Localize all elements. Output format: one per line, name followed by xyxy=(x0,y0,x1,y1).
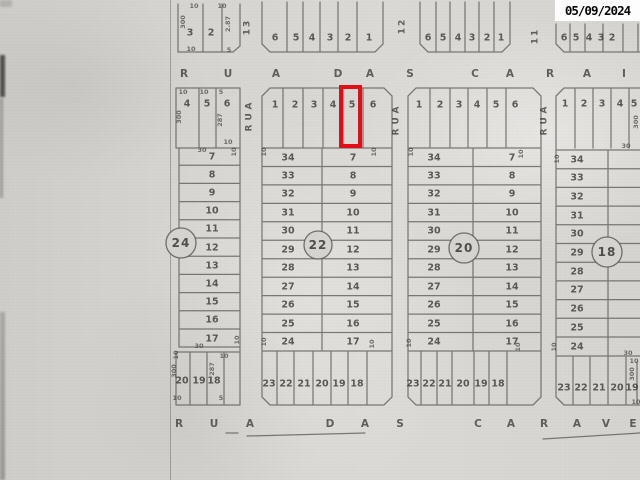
street-letter: E xyxy=(629,419,636,430)
row-lot-number: 15 xyxy=(205,297,218,307)
street-letter: D xyxy=(326,419,335,430)
row-lot-number: 15 xyxy=(505,300,518,310)
lot-number: 2 xyxy=(581,99,588,109)
dim-label: 10 xyxy=(173,350,180,359)
row-lot-number: 29 xyxy=(427,245,440,255)
dim-label: 10 xyxy=(554,154,561,163)
row-lot-number: 9 xyxy=(209,188,216,198)
scanned-plat-map: RUADASCARAIRUADASCARAVE13RUA12RUA11RUA32… xyxy=(0,0,640,480)
lot-number: 4 xyxy=(330,100,337,110)
row-lot-number: 12 xyxy=(205,243,218,253)
row-lot-number: 13 xyxy=(205,261,218,271)
row-lot-number: 17 xyxy=(205,334,218,344)
lot-number: 1 xyxy=(366,33,373,43)
row-lot-number: 10 xyxy=(505,208,518,218)
lot-number: 4 xyxy=(617,99,624,109)
lot-number: 5 xyxy=(493,100,500,110)
row-lot-number: 8 xyxy=(350,171,357,181)
dim-label: 10 xyxy=(371,147,378,156)
dim-label: 5 xyxy=(219,395,224,402)
dim-label: 10 xyxy=(172,395,181,402)
street-letter: C xyxy=(471,69,479,80)
lot-number: 3 xyxy=(469,33,476,43)
block-number: 20 xyxy=(455,242,474,254)
street-letter: A xyxy=(272,69,280,80)
lot-number: 3 xyxy=(311,100,318,110)
dim-label: 10 xyxy=(369,339,376,348)
lot-number: 1 xyxy=(562,99,569,109)
lot-number: 23 xyxy=(557,383,570,393)
row-lot-number: 17 xyxy=(346,337,359,347)
lot-number: 5 xyxy=(573,33,580,43)
lot-number: 6 xyxy=(561,33,568,43)
dim-label: 30 xyxy=(194,343,203,350)
lot-number: 2 xyxy=(345,33,352,43)
lot-number: 22 xyxy=(422,379,435,389)
dim-label: 10 xyxy=(219,353,228,360)
lot-number: 3 xyxy=(598,33,605,43)
street-letter: A xyxy=(361,419,369,430)
lot-number: 23 xyxy=(406,379,419,389)
street-name-vertical: RUA xyxy=(246,99,255,132)
dim-label: 10 xyxy=(186,46,195,53)
lot-number: 4 xyxy=(184,99,191,109)
row-lot-number: 28 xyxy=(281,263,294,273)
street-name-vertical: RUA xyxy=(393,103,402,136)
street-letter: R xyxy=(180,69,188,80)
row-lot-number: 7 xyxy=(209,152,216,162)
lot-number: 21 xyxy=(438,379,451,389)
dim-label: 10 xyxy=(408,147,415,156)
row-lot-number: 26 xyxy=(427,300,440,310)
lot-number: 4 xyxy=(586,33,593,43)
row-lot-number: 29 xyxy=(281,245,294,255)
street-letter: A xyxy=(246,419,254,430)
dim-label: 10 xyxy=(631,399,640,406)
dim-label: 10 xyxy=(515,342,522,351)
dim-label: 10 xyxy=(217,3,226,10)
dim-label: 10 xyxy=(223,139,232,146)
row-lot-number: 8 xyxy=(209,170,216,180)
dim-label: 10 xyxy=(261,337,268,346)
row-lot-number: 32 xyxy=(570,192,583,202)
lot-number: 5 xyxy=(631,99,638,109)
row-lot-number: 16 xyxy=(205,316,218,326)
date-stamp-text: 05/09/2024 xyxy=(565,3,630,18)
lot-number: 20 xyxy=(610,383,623,393)
lot-number: 22 xyxy=(279,379,292,389)
lot-number: 6 xyxy=(370,100,377,110)
block-number: 18 xyxy=(598,246,617,258)
row-lot-number: 24 xyxy=(570,342,583,352)
row-lot-number: 28 xyxy=(427,263,440,273)
row-lot-number: 14 xyxy=(205,279,218,289)
dim-label: 300 xyxy=(171,364,178,378)
dim-label: 10 xyxy=(199,89,208,96)
row-lot-number: 13 xyxy=(346,263,359,273)
street-number: 13 xyxy=(244,19,253,36)
block-number: 22 xyxy=(309,239,328,251)
lot-number: 1 xyxy=(416,100,423,110)
street-letter: R xyxy=(540,419,548,430)
lot-number: 6 xyxy=(425,33,432,43)
street-letter: A xyxy=(507,419,515,430)
lot-number: 23 xyxy=(262,379,275,389)
dim-label: 10 xyxy=(178,89,187,96)
row-lot-number: 13 xyxy=(505,263,518,273)
lot-number: 4 xyxy=(309,33,316,43)
row-lot-number: 24 xyxy=(427,337,440,347)
dim-label: 10 xyxy=(518,149,525,158)
row-lot-number: 10 xyxy=(346,208,359,218)
street-letter: A xyxy=(583,69,591,80)
row-lot-number: 34 xyxy=(570,155,583,165)
street-letter: A xyxy=(366,69,374,80)
lot-number: 3 xyxy=(456,100,463,110)
dim-label: 10 xyxy=(234,335,241,344)
row-lot-number: 14 xyxy=(505,282,518,292)
row-lot-number: 27 xyxy=(427,282,440,292)
street-letter: A xyxy=(506,69,514,80)
row-lot-number: 11 xyxy=(505,227,518,237)
row-lot-number: 30 xyxy=(427,227,440,237)
row-lot-number: 31 xyxy=(570,211,583,221)
lot-number: 19 xyxy=(332,379,345,389)
dim-label: 2.87 xyxy=(225,16,232,32)
row-lot-number: 25 xyxy=(570,323,583,333)
street-letter: R xyxy=(175,419,183,430)
lot-number: 19 xyxy=(474,379,487,389)
lot-number: 22 xyxy=(574,383,587,393)
street-name-vertical: RUA xyxy=(541,103,550,136)
date-stamp: 05/09/2024 xyxy=(555,0,640,21)
row-lot-number: 25 xyxy=(281,319,294,329)
dim-label: 300 xyxy=(176,110,183,124)
dim-label: 287 xyxy=(217,113,224,127)
lot-number: 19 xyxy=(192,376,205,386)
street-letter: R xyxy=(546,69,554,80)
street-letter: C xyxy=(474,419,482,430)
street-letter: A xyxy=(573,419,581,430)
street-letter: S xyxy=(406,69,414,80)
lot-number: 18 xyxy=(491,379,504,389)
street-number: 12 xyxy=(399,18,408,35)
lot-number: 20 xyxy=(456,379,469,389)
street-letter: U xyxy=(224,69,233,80)
dim-label: 30 xyxy=(623,350,632,357)
row-lot-number: 33 xyxy=(281,171,294,181)
dim-label: 5 xyxy=(219,89,224,96)
row-lot-number: 26 xyxy=(281,300,294,310)
street-letter: S xyxy=(396,419,404,430)
row-lot-number: 12 xyxy=(346,245,359,255)
row-lot-number: 8 xyxy=(509,171,516,181)
dim-label: 10 xyxy=(629,358,638,365)
row-lot-number: 25 xyxy=(427,319,440,329)
row-lot-number: 34 xyxy=(281,153,294,163)
lot-number: 4 xyxy=(455,33,462,43)
row-lot-number: 30 xyxy=(570,230,583,240)
row-lot-number: 11 xyxy=(346,227,359,237)
dim-label: 287 xyxy=(209,362,216,376)
street-letter: U xyxy=(210,419,219,430)
row-lot-number: 32 xyxy=(427,190,440,200)
row-lot-number: 24 xyxy=(281,337,294,347)
lot-number: 21 xyxy=(297,379,310,389)
map-labels: RUADASCARAIRUADASCARAVE13RUA12RUA11RUA32… xyxy=(0,0,640,480)
lot-number: 2 xyxy=(292,100,299,110)
row-lot-number: 26 xyxy=(570,304,583,314)
row-lot-number: 31 xyxy=(427,208,440,218)
lot-number: 1 xyxy=(272,100,279,110)
lot-number: 20 xyxy=(315,379,328,389)
row-lot-number: 9 xyxy=(509,190,516,200)
lot-number: 1 xyxy=(498,33,505,43)
row-lot-number: 32 xyxy=(281,190,294,200)
lot-number: 3 xyxy=(187,28,194,38)
dim-label: 10 xyxy=(261,147,268,156)
lot-number: 6 xyxy=(272,33,279,43)
dim-label: 10 xyxy=(189,3,198,10)
row-lot-number: 34 xyxy=(427,153,440,163)
row-lot-number: 14 xyxy=(346,282,359,292)
lot-number: 3 xyxy=(327,33,334,43)
lot-number: 5 xyxy=(440,33,447,43)
lot-number: 4 xyxy=(474,100,481,110)
row-lot-number: 12 xyxy=(505,245,518,255)
lot-number: 6 xyxy=(512,100,519,110)
highlight-rect xyxy=(339,85,362,148)
dim-label: 10 xyxy=(551,342,558,351)
lot-number: 3 xyxy=(599,99,606,109)
street-number: 11 xyxy=(532,28,541,45)
lot-number: 19 xyxy=(625,383,638,393)
row-lot-number: 16 xyxy=(505,319,518,329)
row-lot-number: 28 xyxy=(570,267,583,277)
row-lot-number: 10 xyxy=(205,206,218,216)
dim-label: 300 xyxy=(180,15,187,29)
dim-label: 5 xyxy=(227,47,232,54)
street-letter: D xyxy=(334,69,343,80)
row-lot-number: 16 xyxy=(346,319,359,329)
lot-number: 21 xyxy=(592,383,605,393)
dim-label: 30 xyxy=(621,143,630,150)
dim-label: 300 xyxy=(629,367,636,381)
row-lot-number: 7 xyxy=(350,153,357,163)
street-letter: I xyxy=(622,69,626,80)
row-lot-number: 27 xyxy=(281,282,294,292)
row-lot-number: 30 xyxy=(281,227,294,237)
lot-number: 18 xyxy=(207,376,220,386)
row-lot-number: 33 xyxy=(570,173,583,183)
street-letter: V xyxy=(602,419,610,430)
dim-label: 300 xyxy=(633,115,640,129)
dim-label: 10 xyxy=(231,147,238,156)
row-lot-number: 33 xyxy=(427,171,440,181)
lot-number: 6 xyxy=(224,99,231,109)
lot-number: 5 xyxy=(204,99,211,109)
row-lot-number: 29 xyxy=(570,248,583,258)
lot-number: 2 xyxy=(484,33,491,43)
lot-number: 2 xyxy=(208,28,215,38)
lot-number: 18 xyxy=(350,379,363,389)
lot-number: 2 xyxy=(609,33,616,43)
row-lot-number: 27 xyxy=(570,286,583,296)
dim-label: 10 xyxy=(406,338,413,347)
row-lot-number: 11 xyxy=(205,225,218,235)
lot-number: 2 xyxy=(437,100,444,110)
dim-label: 30 xyxy=(197,147,206,154)
row-lot-number: 7 xyxy=(509,153,516,163)
lot-number: 5 xyxy=(293,33,300,43)
block-number: 24 xyxy=(172,237,191,249)
row-lot-number: 15 xyxy=(346,300,359,310)
row-lot-number: 9 xyxy=(350,190,357,200)
row-lot-number: 31 xyxy=(281,208,294,218)
